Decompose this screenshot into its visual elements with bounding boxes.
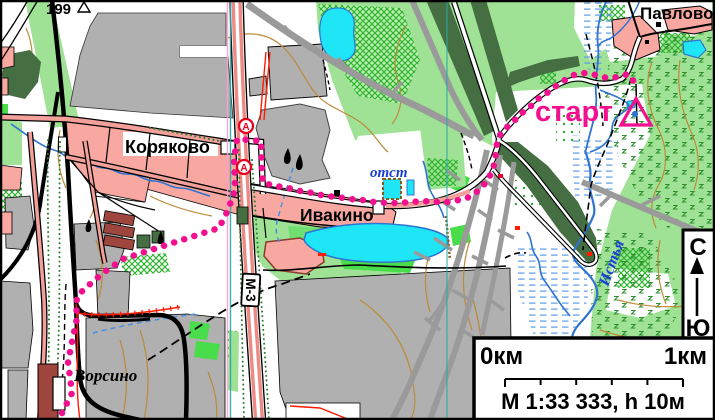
svg-text:1км: 1км	[664, 343, 707, 370]
svg-text:Павлово: Павлово	[640, 4, 713, 23]
svg-text:А: А	[242, 122, 249, 133]
svg-text:0км: 0км	[480, 343, 523, 370]
svg-text:М-3: М-3	[243, 278, 258, 302]
svg-text:199: 199	[46, 1, 71, 18]
svg-text:М 1:33 333, h 10м: М 1:33 333, h 10м	[501, 389, 685, 414]
svg-text:Коряково: Коряково	[125, 137, 210, 157]
svg-text:Ворсино: Ворсино	[73, 366, 137, 385]
svg-text:старт: старт	[535, 96, 613, 128]
svg-text:С: С	[689, 234, 706, 261]
svg-text:Ивакино: Ивакино	[300, 205, 374, 225]
svg-text:А: А	[240, 163, 247, 174]
svg-text:отст: отст	[370, 165, 408, 181]
